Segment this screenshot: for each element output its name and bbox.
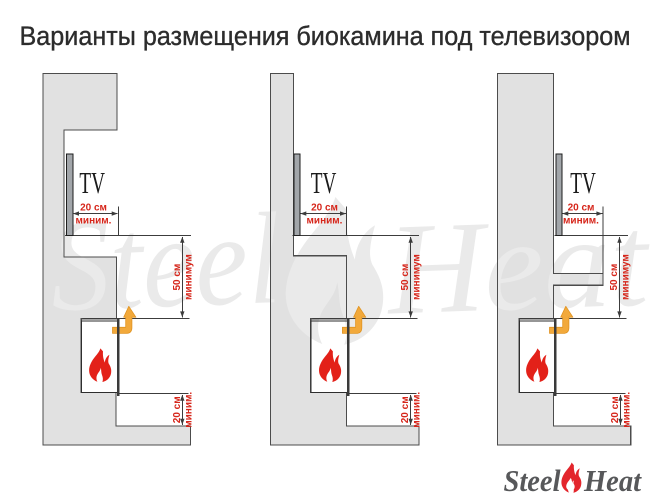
svg-text:20 см: 20 см [610, 396, 621, 423]
svg-text:минимум: минимум [183, 254, 194, 300]
svg-text:миним.: миним. [622, 392, 633, 428]
svg-text:20 см: 20 см [400, 396, 411, 423]
svg-text:20 см: 20 см [172, 396, 183, 423]
svg-text:миним.: миним. [76, 216, 112, 227]
svg-text:50 см: 50 см [172, 264, 183, 291]
svg-text:Варианты размещения биокамина: Варианты размещения биокамина под телеви… [20, 21, 631, 51]
svg-text:миним.: миним. [563, 216, 599, 227]
svg-text:миним.: миним. [307, 216, 343, 227]
svg-text:Steel: Steel [504, 463, 561, 498]
svg-text:Heat: Heat [583, 463, 642, 498]
svg-text:20 см: 20 см [80, 203, 107, 214]
svg-text:миним.: миним. [183, 392, 194, 428]
svg-text:TV: TV [311, 165, 337, 200]
svg-text:50 см: 50 см [609, 264, 620, 291]
svg-text:TV: TV [570, 165, 596, 200]
svg-text:минимум: минимум [412, 254, 423, 300]
svg-text:50 см: 50 см [400, 264, 411, 291]
svg-text:минимум: минимум [621, 254, 632, 300]
svg-text:TV: TV [79, 165, 105, 200]
svg-text:20 см: 20 см [311, 203, 338, 214]
svg-text:20 см: 20 см [568, 203, 595, 214]
svg-text:миним.: миним. [412, 392, 423, 428]
